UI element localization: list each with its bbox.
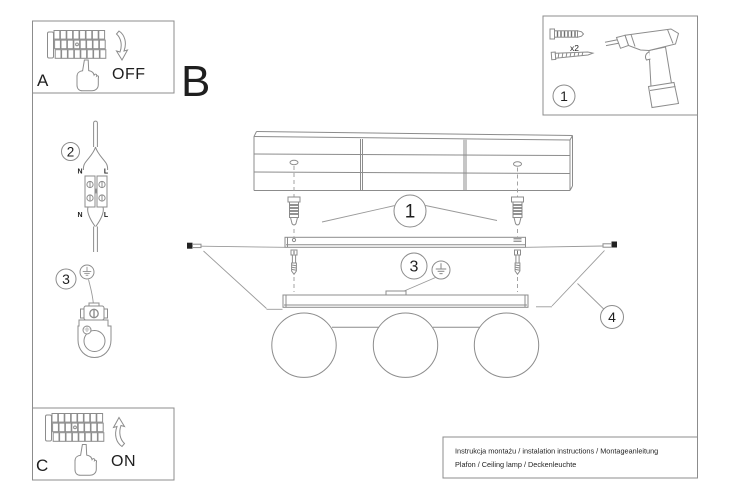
breaker-panel-icon — [46, 414, 104, 442]
footer-border — [443, 437, 698, 478]
step-3-number: 3 — [62, 271, 70, 287]
canopy — [254, 132, 573, 191]
canopy-hole-right — [514, 162, 522, 166]
ground-wire — [89, 280, 94, 306]
panel-a-label: A — [37, 71, 49, 90]
wire-label-l-top: L — [104, 169, 109, 176]
instruction-diagram: A OFF B 2 N L N L 3 — [0, 0, 730, 501]
terminal-block — [85, 176, 107, 207]
wall-plug-right-icon — [512, 197, 524, 225]
arrow-up-icon — [114, 418, 125, 447]
screw-right-icon — [515, 250, 521, 274]
side-screw-left-icon — [187, 243, 193, 249]
panel-c-power-on: C ON — [33, 408, 175, 480]
panel-c-state: ON — [111, 453, 136, 470]
mounting-bar — [285, 237, 526, 247]
hardware-box: x2 1 — [543, 16, 698, 115]
side-screw-right-icon — [612, 242, 618, 248]
footer-line-2: Plafon / Ceiling lamp / Deckenleuchte — [455, 460, 576, 469]
callout-3-number: 3 — [410, 259, 419, 276]
cable-top — [83, 121, 107, 170]
step-2-number: 2 — [67, 145, 75, 160]
cable-bottom — [88, 207, 104, 252]
anchor-quantity: x2 — [570, 43, 579, 53]
step-3-ground-bracket: 3 — [56, 265, 111, 358]
callout-1-number: 1 — [405, 202, 416, 223]
panel-a-power-off: A OFF — [33, 21, 175, 93]
wire-label-n-bottom: N — [77, 212, 82, 219]
step-2-wiring: 2 N L N L — [62, 121, 109, 252]
side-screws-callout: 4 — [187, 242, 624, 329]
arrow-down-icon — [117, 31, 128, 60]
lamp-body — [272, 291, 539, 377]
glass-globe — [474, 313, 538, 377]
section-b-label: B — [181, 57, 210, 106]
panel-a-state: OFF — [112, 66, 146, 83]
canopy-hole-left — [290, 160, 298, 164]
glass-globe — [272, 313, 336, 377]
panel-c-label: C — [36, 456, 48, 475]
hand-icon — [77, 60, 99, 91]
anchors-callout: 1 — [288, 166, 524, 237]
instruction-sheet: A OFF B 2 N L N L 3 — [0, 0, 730, 501]
ground-callout: 3 — [401, 253, 450, 292]
drill-icon — [605, 29, 679, 108]
screw-left-icon — [291, 250, 297, 274]
wall-plug-left-icon — [288, 197, 300, 225]
wall-plug-icon — [550, 29, 584, 39]
footer-line-1: Instrukcja montażu / instalation instruc… — [455, 447, 658, 456]
mounting-bracket — [78, 320, 111, 358]
wire-label-n-top: N — [77, 169, 82, 176]
ground-terminal — [81, 303, 108, 320]
breaker-panel-icon — [48, 31, 106, 59]
callout-4-number: 4 — [608, 309, 616, 325]
glass-globe — [373, 313, 437, 377]
hand-icon — [75, 445, 97, 476]
wire-label-l-bottom: L — [104, 212, 109, 219]
footer-title-block: Instrukcja montażu / instalation instruc… — [443, 437, 698, 478]
hardware-step-number: 1 — [560, 88, 568, 104]
frame-lines — [33, 16, 698, 480]
